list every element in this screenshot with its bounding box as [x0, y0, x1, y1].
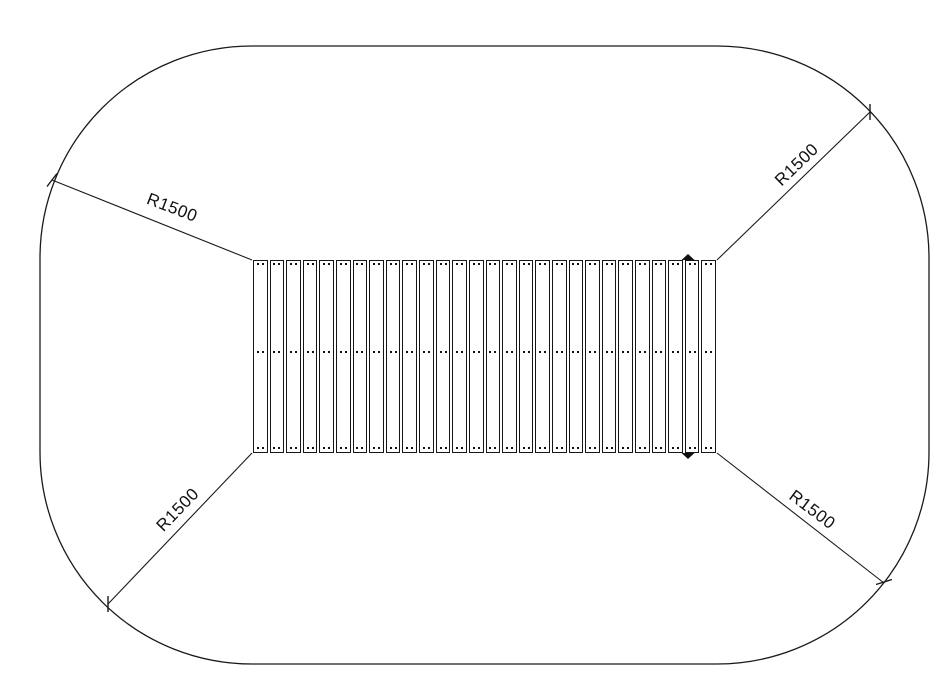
fastener-dot — [528, 263, 530, 265]
fastener-dot — [694, 447, 696, 449]
fastener-dot-row-bottom — [503, 447, 516, 449]
fastener-dot — [373, 263, 375, 265]
fastener-dot — [461, 263, 463, 265]
deck-plank — [436, 260, 451, 453]
fastener-dot — [611, 263, 613, 265]
fastener-dot — [262, 263, 264, 265]
fastener-dot-row-top — [403, 263, 416, 265]
fastener-dot — [445, 447, 447, 449]
fastener-dot — [328, 263, 330, 265]
fastener-dot — [262, 351, 264, 353]
fastener-dot — [644, 263, 646, 265]
fastener-dot — [428, 351, 430, 353]
deck-plank — [618, 260, 633, 453]
fastener-dot — [340, 351, 342, 353]
fastener-dot-row-middle — [487, 351, 500, 353]
fastener-dot-row-top — [254, 263, 267, 265]
fastener-dot — [257, 447, 259, 449]
fastener-dot — [677, 263, 679, 265]
fastener-dot — [312, 351, 314, 353]
fastener-dot — [390, 447, 392, 449]
fastener-dot — [411, 447, 413, 449]
fastener-dot — [589, 351, 591, 353]
deck-plank — [419, 260, 434, 453]
fastener-dot — [295, 447, 297, 449]
fastener-dot-row-middle — [553, 351, 566, 353]
deck-plank — [585, 260, 600, 453]
fastener-dot — [328, 447, 330, 449]
fastener-dot — [295, 263, 297, 265]
fastener-dot — [406, 263, 408, 265]
fastener-dot — [705, 263, 707, 265]
fastener-dot-row-bottom — [669, 447, 682, 449]
fastener-dot — [473, 447, 475, 449]
fastener-dot — [323, 447, 325, 449]
fastener-dot — [356, 263, 358, 265]
fastener-dot-row-middle — [702, 351, 715, 353]
fastener-dot-row-top — [387, 263, 400, 265]
fastener-dot — [577, 263, 579, 265]
fastener-dot — [440, 263, 442, 265]
fastener-dot-row-middle — [320, 351, 333, 353]
fastener-dot — [307, 263, 309, 265]
fastener-dot-row-top — [370, 263, 383, 265]
fastener-dot — [361, 351, 363, 353]
fastener-dot — [494, 447, 496, 449]
fastener-dot-row-bottom — [320, 447, 333, 449]
fastener-dot-row-bottom — [337, 447, 350, 449]
deck-plank — [602, 260, 617, 453]
fastener-dot — [378, 447, 380, 449]
fastener-dot — [312, 263, 314, 265]
fastener-dot-row-top — [536, 263, 549, 265]
fastener-dot — [710, 263, 712, 265]
fastener-dot-row-middle — [453, 351, 466, 353]
fastener-dot-row-bottom — [586, 447, 599, 449]
fastener-dot-row-top — [287, 263, 300, 265]
fastener-dot — [639, 447, 641, 449]
fastener-dot — [323, 351, 325, 353]
fastener-dot — [689, 447, 691, 449]
fastener-dot-row-top — [470, 263, 483, 265]
deck-plank — [635, 260, 650, 453]
fastener-dot — [606, 263, 608, 265]
fastener-dot-row-top — [686, 263, 699, 265]
fastener-dot — [694, 351, 696, 353]
fastener-dot — [278, 351, 280, 353]
fastener-dot — [395, 263, 397, 265]
fastener-dot-row-top — [570, 263, 583, 265]
deck-plank — [701, 260, 716, 453]
fastener-dot-row-top — [553, 263, 566, 265]
fastener-dot — [461, 351, 463, 353]
fastener-dot — [411, 263, 413, 265]
fastener-dot — [660, 447, 662, 449]
fastener-dot-row-middle — [686, 351, 699, 353]
fastener-dot — [523, 351, 525, 353]
fastener-dot-row-bottom — [619, 447, 632, 449]
fastener-dot-row-top — [586, 263, 599, 265]
fastener-dot-row-top — [603, 263, 616, 265]
deck-plank — [286, 260, 301, 453]
fastener-dot — [539, 447, 541, 449]
fastener-dot-row-bottom — [370, 447, 383, 449]
fastener-dot — [257, 351, 259, 353]
fastener-dot — [611, 351, 613, 353]
fastener-dot — [677, 351, 679, 353]
fastener-dot — [606, 447, 608, 449]
fastener-dot — [611, 447, 613, 449]
fastener-dot-row-bottom — [553, 447, 566, 449]
deck-plank — [452, 260, 467, 453]
fastener-dot-row-bottom — [271, 447, 284, 449]
fastener-dot — [523, 447, 525, 449]
fastener-dot-row-middle — [354, 351, 367, 353]
fastener-dot — [594, 447, 596, 449]
deck-plank — [668, 260, 683, 453]
fastener-dot — [572, 263, 574, 265]
fastener-dot — [345, 351, 347, 353]
fastener-dot — [323, 263, 325, 265]
fastener-dot-row-middle — [669, 351, 682, 353]
fastener-dot-row-middle — [403, 351, 416, 353]
fastener-dot-row-bottom — [387, 447, 400, 449]
fastener-dot-row-top — [271, 263, 284, 265]
fastener-dot — [456, 351, 458, 353]
deck-plank — [402, 260, 417, 453]
fastener-dot — [361, 263, 363, 265]
deck-plank — [303, 260, 318, 453]
fastener-dot-row-top — [304, 263, 317, 265]
fastener-dot — [273, 351, 275, 353]
fastener-dot-row-middle — [619, 351, 632, 353]
fastener-dot — [456, 447, 458, 449]
fastener-dot — [506, 447, 508, 449]
fastener-dot — [528, 447, 530, 449]
fastener-dot-row-middle — [437, 351, 450, 353]
deck-plank — [652, 260, 667, 453]
fastener-dot-row-middle — [503, 351, 516, 353]
fastener-dot-row-middle — [370, 351, 383, 353]
fastener-dot — [440, 447, 442, 449]
fastener-dot-row-bottom — [702, 447, 715, 449]
fastener-dot — [262, 447, 264, 449]
fastener-dot-row-middle — [470, 351, 483, 353]
fastener-dot-row-top — [354, 263, 367, 265]
plan-drawing-canvas: R1500 R1500 R1500 R1500 — [0, 0, 944, 699]
fastener-dot — [539, 351, 541, 353]
fastener-dot-row-bottom — [520, 447, 533, 449]
radius-dimension-line-top-right — [717, 112, 870, 260]
fastener-dot — [445, 263, 447, 265]
fastener-dot-row-top — [487, 263, 500, 265]
fastener-dot-row-top — [420, 263, 433, 265]
fastener-dot — [361, 447, 363, 449]
fastener-dot-row-middle — [271, 351, 284, 353]
fastener-dot — [694, 263, 696, 265]
fastener-dot — [494, 351, 496, 353]
fastener-dot-row-top — [619, 263, 632, 265]
fastener-dot — [561, 351, 563, 353]
fastener-dot — [478, 447, 480, 449]
fastener-dot — [577, 351, 579, 353]
fastener-dot-row-middle — [603, 351, 616, 353]
deck-plank — [569, 260, 584, 453]
fastener-dot — [528, 351, 530, 353]
fastener-dot-row-bottom — [603, 447, 616, 449]
fastener-dot — [489, 263, 491, 265]
fastener-dot-row-bottom — [354, 447, 367, 449]
fastener-dot-row-top — [437, 263, 450, 265]
fastener-dot — [345, 263, 347, 265]
fastener-dot-row-bottom — [453, 447, 466, 449]
fastener-dot — [710, 447, 712, 449]
fastener-dot — [572, 447, 574, 449]
fastener-dot — [655, 351, 657, 353]
fastener-dot — [677, 447, 679, 449]
fastener-dot — [278, 447, 280, 449]
fastener-dot — [556, 447, 558, 449]
fastener-dot — [307, 447, 309, 449]
fastener-dot-row-top — [453, 263, 466, 265]
fastener-dot — [627, 447, 629, 449]
fastener-dot — [373, 447, 375, 449]
fastener-dot — [356, 447, 358, 449]
fastener-dot — [278, 263, 280, 265]
deck-plank — [519, 260, 534, 453]
fastener-dot — [660, 263, 662, 265]
fastener-dot — [307, 351, 309, 353]
fastener-dot — [290, 351, 292, 353]
fastener-dot — [423, 351, 425, 353]
fastener-dot — [622, 447, 624, 449]
fastener-dot-row-top — [503, 263, 516, 265]
radius-dimension-line-bottom-right — [717, 453, 884, 583]
fastener-dot-row-bottom — [287, 447, 300, 449]
fastener-dot-row-middle — [287, 351, 300, 353]
fastener-dot-row-middle — [536, 351, 549, 353]
deck-plank — [486, 260, 501, 453]
fastener-dot-row-bottom — [470, 447, 483, 449]
fastener-dot — [494, 263, 496, 265]
fastener-dot — [511, 263, 513, 265]
fastener-dot — [660, 351, 662, 353]
fastener-dot — [345, 447, 347, 449]
fastener-dot — [606, 351, 608, 353]
fastener-dot — [440, 351, 442, 353]
fastener-dot — [627, 263, 629, 265]
fastener-dot — [428, 263, 430, 265]
fastener-dot — [622, 263, 624, 265]
fastener-dot — [556, 263, 558, 265]
deck-plank — [253, 260, 268, 453]
fastener-dot — [390, 263, 392, 265]
fastener-dot — [489, 351, 491, 353]
fastener-dot — [406, 447, 408, 449]
fastener-dot — [589, 263, 591, 265]
deck-plank — [336, 260, 351, 453]
plank-deck — [252, 260, 717, 453]
fastener-dot-row-top — [520, 263, 533, 265]
fastener-dot-row-middle — [586, 351, 599, 353]
fastener-dot — [445, 351, 447, 353]
fastener-dot — [312, 447, 314, 449]
fastener-dot — [406, 351, 408, 353]
fastener-dot — [544, 263, 546, 265]
fastener-dot-row-bottom — [487, 447, 500, 449]
deck-plank — [270, 260, 285, 453]
fastener-dot — [295, 351, 297, 353]
fastener-dot-row-middle — [653, 351, 666, 353]
fastener-dot — [456, 263, 458, 265]
deck-plank — [535, 260, 550, 453]
fastener-dot — [689, 351, 691, 353]
deck-plank — [502, 260, 517, 453]
fastener-dot — [705, 351, 707, 353]
fastener-dot — [478, 263, 480, 265]
fastener-dot-row-bottom — [653, 447, 666, 449]
fastener-dot — [589, 447, 591, 449]
fastener-dot — [511, 447, 513, 449]
fastener-dot-row-bottom — [403, 447, 416, 449]
fastener-dot — [328, 351, 330, 353]
fastener-dot — [273, 447, 275, 449]
fastener-dot — [428, 447, 430, 449]
deck-plank — [469, 260, 484, 453]
fastener-dot — [340, 447, 342, 449]
fastener-dot-row-bottom — [437, 447, 450, 449]
fastener-dot — [411, 351, 413, 353]
fastener-dot — [672, 447, 674, 449]
fastener-dot-row-bottom — [536, 447, 549, 449]
fastener-dot-row-middle — [420, 351, 433, 353]
fastener-dot — [290, 447, 292, 449]
fastener-dot — [523, 263, 525, 265]
fastener-dot — [710, 351, 712, 353]
fastener-dot — [655, 263, 657, 265]
fastener-dot — [373, 351, 375, 353]
fastener-dot — [639, 351, 641, 353]
fastener-dot-row-bottom — [304, 447, 317, 449]
fastener-dot-row-top — [320, 263, 333, 265]
fastener-dot — [572, 351, 574, 353]
deck-plank — [369, 260, 384, 453]
fastener-dot-row-middle — [254, 351, 267, 353]
fastener-dot-row-bottom — [420, 447, 433, 449]
fastener-dot — [511, 351, 513, 353]
fastener-dot — [423, 263, 425, 265]
fastener-dot — [594, 351, 596, 353]
fastener-dot — [395, 351, 397, 353]
fastener-dot — [423, 447, 425, 449]
fastener-dot-row-top — [653, 263, 666, 265]
fastener-dot-row-middle — [304, 351, 317, 353]
fastener-dot — [273, 263, 275, 265]
fastener-dot — [672, 263, 674, 265]
fastener-dot — [639, 263, 641, 265]
fastener-dot — [290, 263, 292, 265]
fastener-dot-row-middle — [387, 351, 400, 353]
fastener-dot — [539, 263, 541, 265]
fastener-dot — [622, 351, 624, 353]
fastener-dot — [489, 447, 491, 449]
deck-plank — [386, 260, 401, 453]
fastener-dot-row-middle — [337, 351, 350, 353]
fastener-dot — [395, 447, 397, 449]
fastener-dot — [644, 447, 646, 449]
dimension-tick-bottom-right — [876, 580, 892, 585]
deck-plank — [552, 260, 567, 453]
fastener-dot-row-bottom — [636, 447, 649, 449]
fastener-dot — [473, 351, 475, 353]
fastener-dot-row-bottom — [686, 447, 699, 449]
fastener-dot — [506, 351, 508, 353]
fastener-dot — [544, 447, 546, 449]
fastener-dot — [356, 351, 358, 353]
fastener-dot — [561, 447, 563, 449]
fastener-dot — [506, 263, 508, 265]
fastener-dot — [478, 351, 480, 353]
fastener-dot — [627, 351, 629, 353]
fastener-dot-row-bottom — [570, 447, 583, 449]
deck-plank — [319, 260, 334, 453]
fastener-dot-row-top — [636, 263, 649, 265]
fastener-dot — [473, 263, 475, 265]
radius-dimension-line-bottom-left — [108, 453, 252, 604]
plank-marker-arrow-bottom — [682, 453, 695, 459]
fastener-dot — [577, 447, 579, 449]
fastener-dot — [378, 351, 380, 353]
fastener-dot — [594, 263, 596, 265]
fastener-dot-row-top — [702, 263, 715, 265]
fastener-dot-row-middle — [570, 351, 583, 353]
fastener-dot — [257, 263, 259, 265]
fastener-dot-row-middle — [636, 351, 649, 353]
fastener-dot — [390, 351, 392, 353]
deck-plank — [685, 260, 700, 453]
fastener-dot — [655, 447, 657, 449]
deck-plank — [353, 260, 368, 453]
fastener-dot — [644, 351, 646, 353]
fastener-dot — [689, 263, 691, 265]
fastener-dot-row-middle — [520, 351, 533, 353]
fastener-dot — [544, 351, 546, 353]
fastener-dot — [461, 447, 463, 449]
fastener-dot — [378, 263, 380, 265]
fastener-dot — [705, 447, 707, 449]
fastener-dot — [340, 263, 342, 265]
fastener-dot-row-top — [337, 263, 350, 265]
fastener-dot — [561, 263, 563, 265]
fastener-dot-row-top — [669, 263, 682, 265]
fastener-dot — [672, 351, 674, 353]
fastener-dot-row-bottom — [254, 447, 267, 449]
fastener-dot — [556, 351, 558, 353]
